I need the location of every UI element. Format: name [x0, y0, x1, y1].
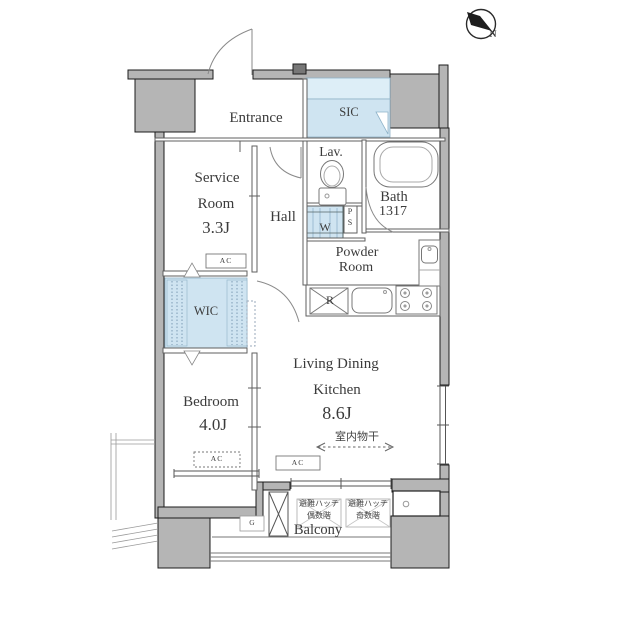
- room-label-entrance: Entrance: [229, 111, 282, 126]
- ac-label-bedroom: AC: [211, 455, 223, 463]
- indoor-drying-label: 室内物干: [335, 431, 379, 442]
- room-size-bath: 1317: [379, 205, 407, 219]
- vanity-basin: [419, 240, 440, 286]
- fridge-space-label: R: [326, 294, 334, 306]
- stove: [396, 286, 437, 314]
- room-size-service: 3.3J: [202, 219, 230, 236]
- room-label-service-1: Service: [195, 171, 240, 186]
- room-label-lav: Lav.: [319, 145, 343, 159]
- washer-label: W: [319, 221, 330, 233]
- ac-label-service: AC: [220, 257, 232, 265]
- pipe-space-s-label: S: [348, 219, 352, 227]
- pocket-door-track: [247, 301, 255, 346]
- room-label-powder-2: Room: [339, 261, 373, 275]
- balcony-column: [269, 492, 288, 536]
- gas-meter-label: G: [249, 519, 254, 527]
- bathtub: [374, 142, 438, 187]
- compass-north-label: N: [490, 31, 497, 41]
- pipe-space-p-label: P: [348, 208, 352, 216]
- room-label-sic: SIC: [339, 106, 358, 119]
- floor-plan-graphics: [0, 0, 640, 639]
- hatch-odd-floors: 奇数階: [356, 512, 380, 520]
- utility-box: [393, 491, 440, 516]
- floor-plan: Entrance SIC Service Room 3.3J Hall Lav.…: [0, 0, 640, 639]
- hatch-even-floors: 偶数階: [307, 512, 331, 520]
- room-label-wic: WIC: [194, 305, 218, 318]
- hatch-even-title: 避難ハッチ: [299, 500, 339, 508]
- hatch-odd-title: 避難ハッチ: [348, 500, 388, 508]
- room-label-service-2: Room: [198, 197, 235, 212]
- room-size-bedroom: 4.0J: [199, 416, 227, 433]
- room-size-ldk: 8.6J: [322, 404, 352, 422]
- kitchen-sink: [352, 288, 392, 313]
- room-label-powder-1: Powder: [336, 246, 379, 260]
- balcony-lines: [210, 537, 391, 561]
- room-label-balcony: Balcony: [294, 523, 342, 538]
- room-label-ldk-2: Kitchen: [313, 383, 360, 398]
- ac-label-ldk: AC: [292, 459, 304, 467]
- room-label-ldk-1: Living Dining: [293, 357, 378, 372]
- room-label-hall: Hall: [270, 210, 296, 225]
- drying-rail: [317, 443, 393, 451]
- neighbor-lines: [111, 433, 158, 549]
- room-label-bath: Bath: [380, 190, 407, 205]
- room-label-bedroom: Bedroom: [183, 395, 239, 410]
- toilet: [319, 161, 346, 206]
